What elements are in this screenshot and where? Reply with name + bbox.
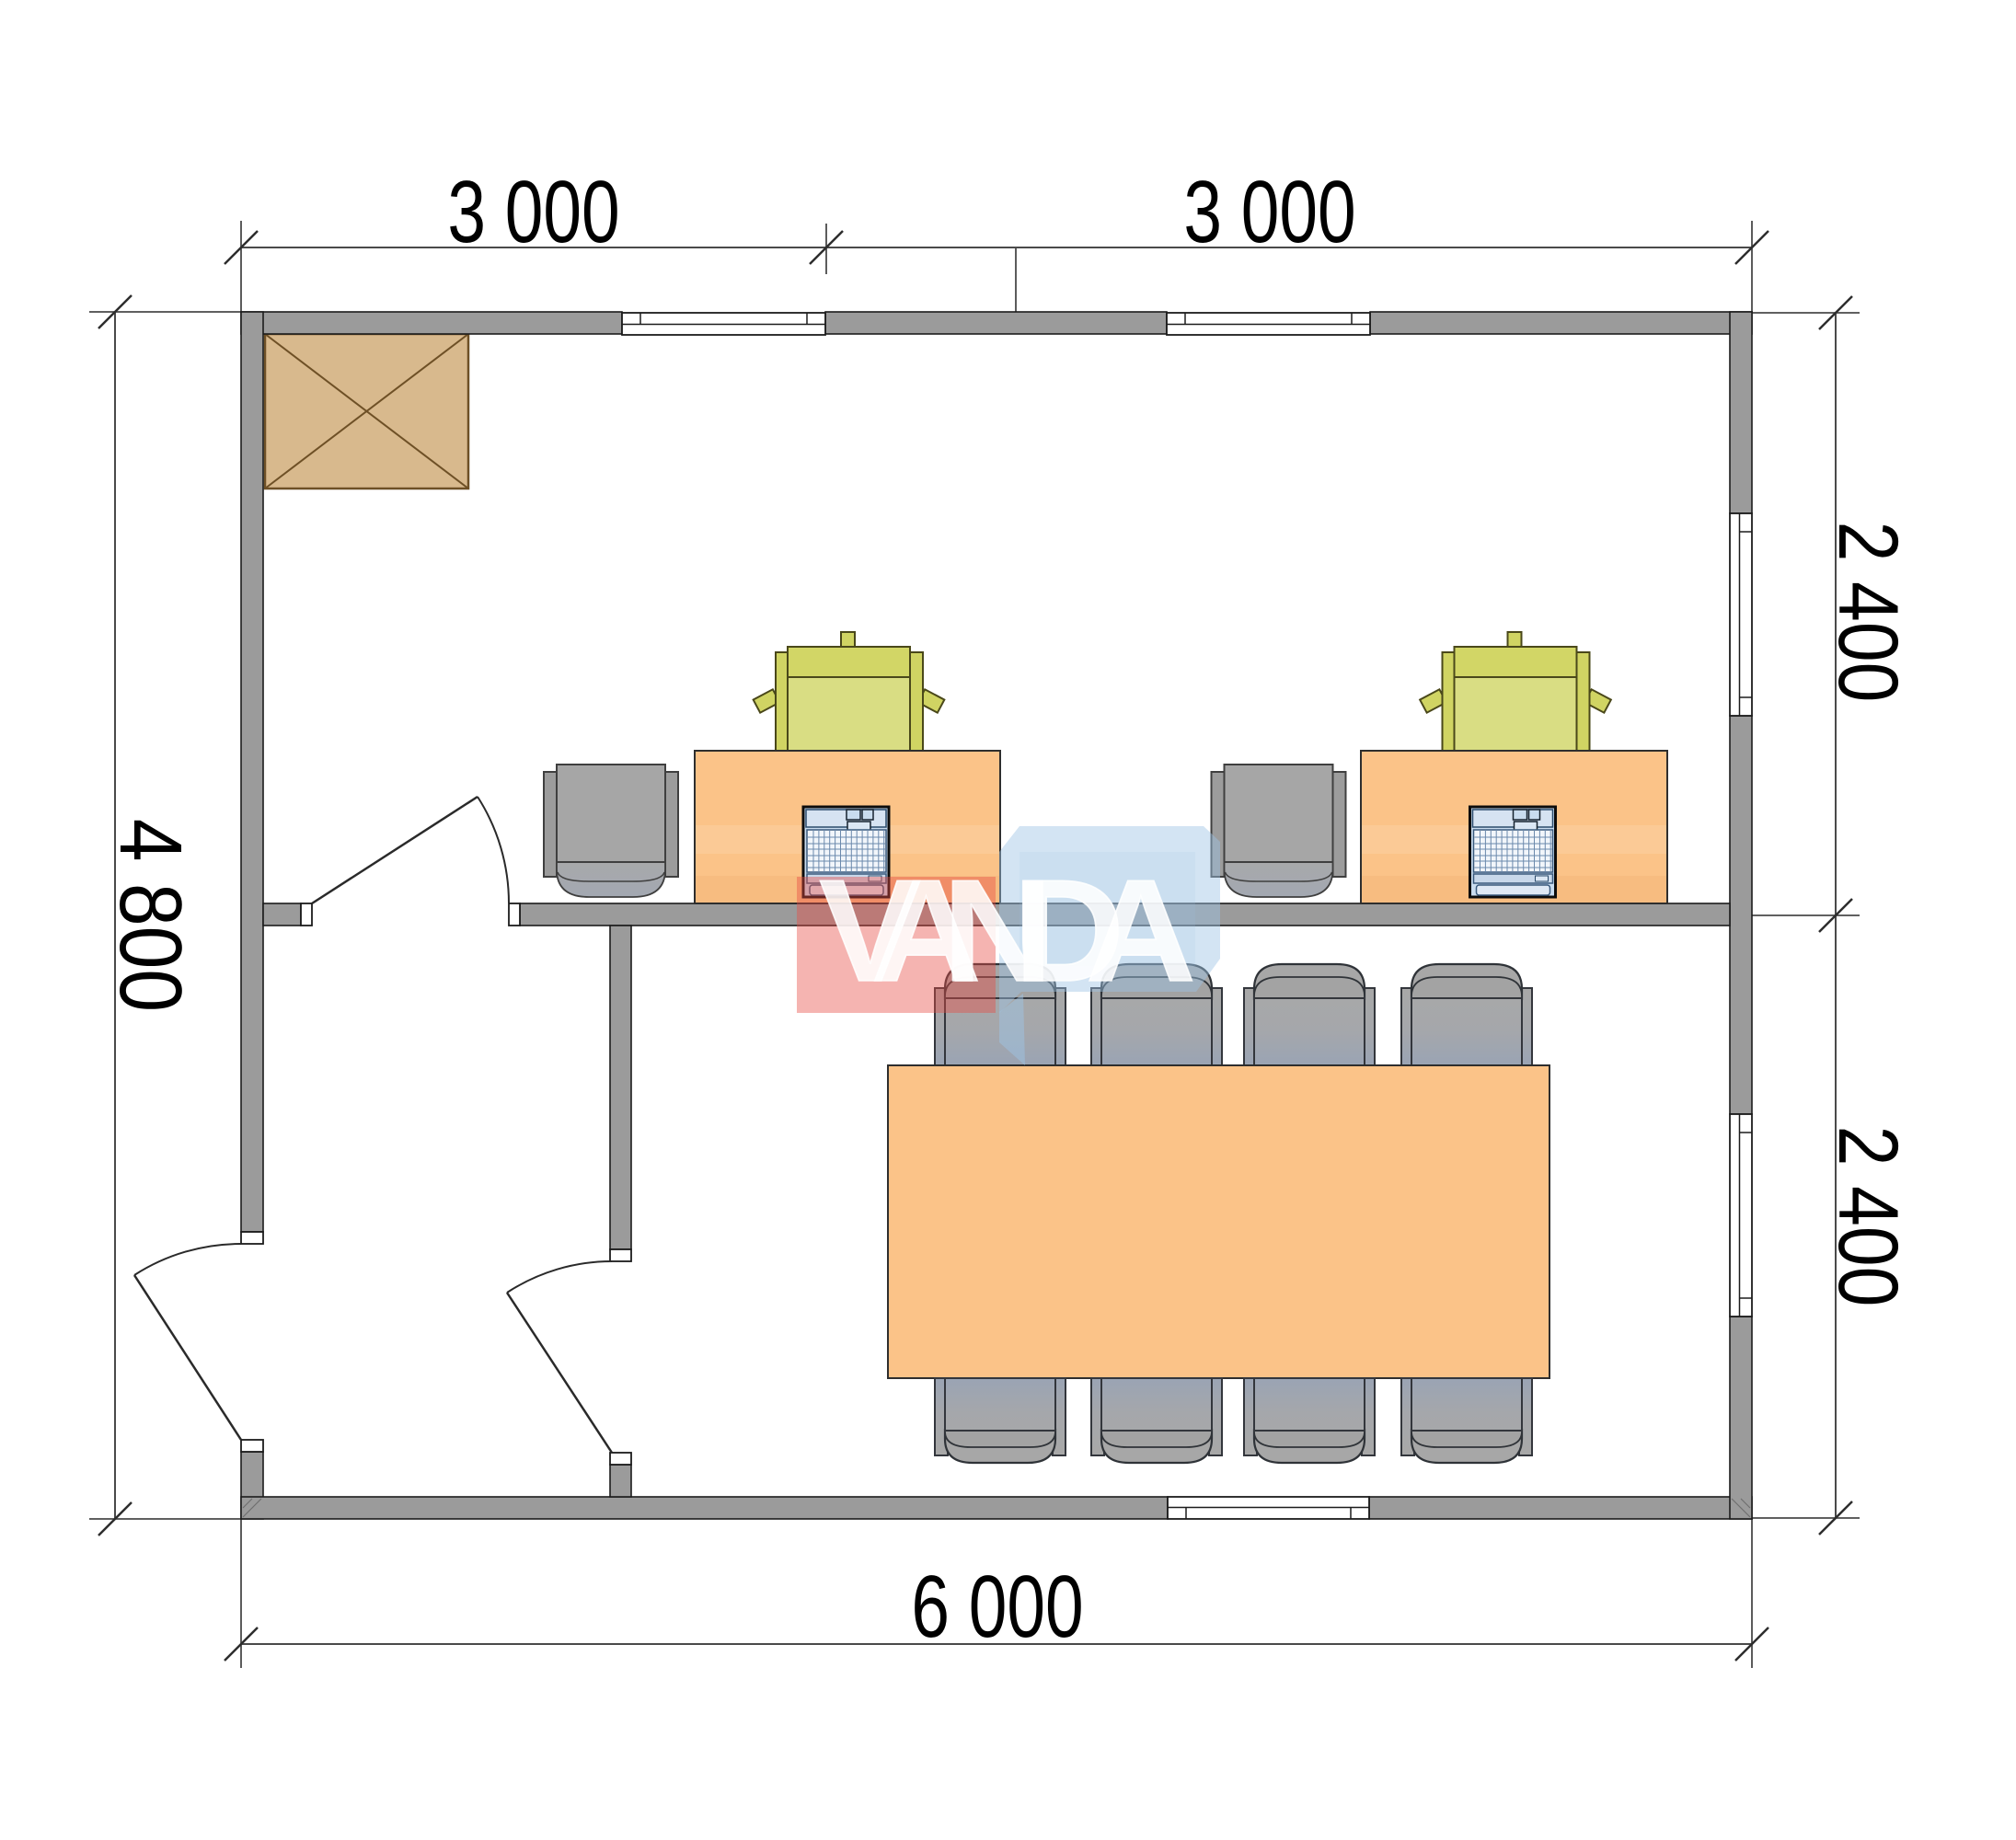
svg-text:3 000: 3 000	[447, 163, 619, 261]
svg-text:2 400: 2 400	[1821, 1126, 1915, 1307]
svg-text:6 000: 6 000	[911, 1558, 1083, 1656]
svg-text:2 400: 2 400	[1821, 522, 1915, 703]
svg-text:4 800: 4 800	[101, 819, 200, 1012]
svg-text:3 000: 3 000	[1183, 163, 1355, 261]
svg-text:VANDA: VANDA	[819, 850, 1192, 1013]
